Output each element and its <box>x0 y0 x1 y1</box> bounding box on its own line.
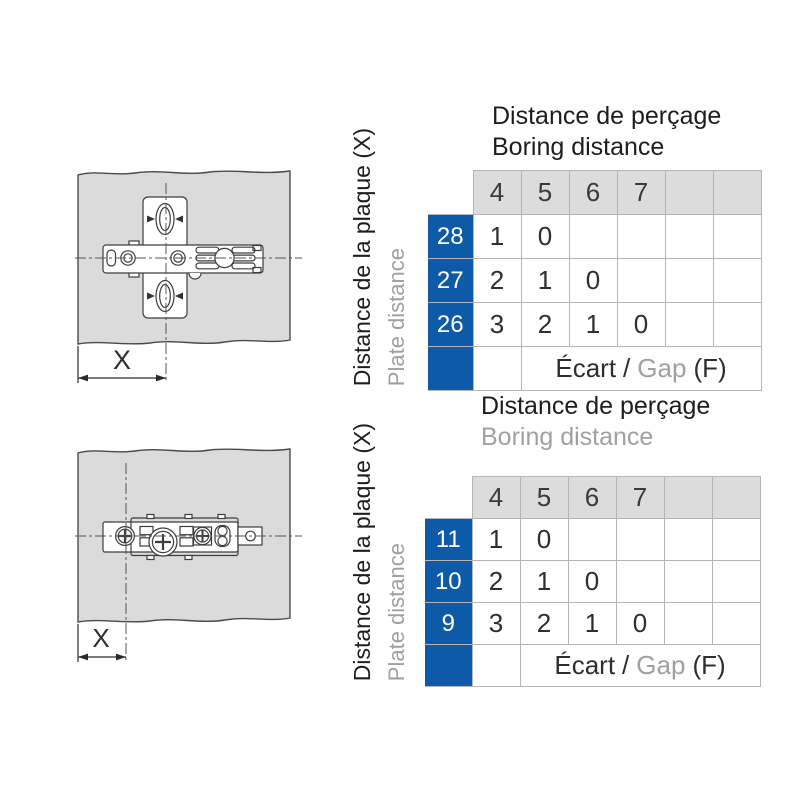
value-cell <box>665 215 713 259</box>
row-header: 11 <box>425 519 472 561</box>
value-cell: 1 <box>521 259 569 303</box>
table-title-en: Boring distance <box>481 422 710 453</box>
value-cell <box>568 519 616 561</box>
column-header-row: 4 5 6 7 <box>425 477 760 519</box>
value-cell <box>713 259 761 303</box>
corner-cell <box>425 477 472 519</box>
value-cell <box>616 519 664 561</box>
value-cell <box>616 561 664 603</box>
value-cell: 2 <box>520 603 568 645</box>
empty-cell <box>472 645 520 687</box>
table-row: 27 2 1 0 <box>428 259 761 303</box>
dimension-x: X <box>78 345 166 383</box>
value-cell <box>617 215 665 259</box>
side-label-plate-distance-fr-bottom: Distance de la plaque (X) <box>349 423 376 681</box>
boring-distance-table-top: 4 5 6 7 28 1 0 27 2 1 0 26 3 <box>428 170 762 391</box>
value-cell: 0 <box>569 259 617 303</box>
value-cell: 0 <box>520 519 568 561</box>
value-cell: 3 <box>473 303 521 347</box>
gap-label-suffix: (F) <box>692 650 725 680</box>
footer-row: Écart/Gap(F) <box>425 645 760 687</box>
value-cell: 0 <box>617 303 665 347</box>
mounting-plate-drawing-bottom: X <box>55 430 320 670</box>
table-row: 10 2 1 0 <box>425 561 760 603</box>
value-cell: 1 <box>473 215 521 259</box>
empty-cell <box>473 347 521 391</box>
gap-label-cell: Écart/Gap(F) <box>520 645 760 687</box>
row-header: 27 <box>428 259 473 303</box>
footer-row: Écart/Gap(F) <box>428 347 761 391</box>
column-header: 5 <box>520 477 568 519</box>
column-header <box>664 477 712 519</box>
table-title-bottom: Distance de perçage Boring distance <box>481 391 710 453</box>
value-cell <box>712 519 760 561</box>
side-label-plate-distance-en-top: Plate distance <box>384 248 410 386</box>
dimension-label: X <box>113 345 131 375</box>
column-header <box>713 171 761 215</box>
column-header: 4 <box>472 477 520 519</box>
value-cell <box>713 303 761 347</box>
table-title-fr: Distance de perçage <box>481 391 710 422</box>
value-cell: 2 <box>521 303 569 347</box>
value-cell <box>617 259 665 303</box>
value-cell <box>665 259 713 303</box>
value-cell: 1 <box>472 519 520 561</box>
footer-blue-cell <box>425 645 472 687</box>
gap-label-suffix: (F) <box>693 353 726 383</box>
catalog-page: X <box>0 0 800 800</box>
gap-label-cell: Écart/Gap(F) <box>521 347 761 391</box>
value-cell <box>665 303 713 347</box>
gap-label-fr: Écart <box>554 650 615 680</box>
column-header: 5 <box>521 171 569 215</box>
table-row: 9 3 2 1 0 <box>425 603 760 645</box>
side-label-plate-distance-en-bottom: Plate distance <box>384 543 410 681</box>
gap-label-separator: / <box>622 650 629 680</box>
value-cell: 2 <box>472 561 520 603</box>
gap-label-fr: Écart <box>555 353 616 383</box>
value-cell <box>569 215 617 259</box>
value-cell <box>664 519 712 561</box>
dimension-x: X <box>78 623 126 662</box>
mounting-plate-drawing-top: X <box>55 150 320 390</box>
table-row: 26 3 2 1 0 <box>428 303 761 347</box>
gap-label-en: Gap <box>637 353 686 383</box>
column-header: 4 <box>473 171 521 215</box>
table-title-fr: Distance de perçage <box>492 101 721 132</box>
column-header: 7 <box>616 477 664 519</box>
footer-blue-cell <box>428 347 473 391</box>
column-header-row: 4 5 6 7 <box>428 171 761 215</box>
table-row: 28 1 0 <box>428 215 761 259</box>
row-header: 26 <box>428 303 473 347</box>
value-cell: 0 <box>521 215 569 259</box>
value-cell: 3 <box>472 603 520 645</box>
table-row: 11 1 0 <box>425 519 760 561</box>
value-cell <box>713 215 761 259</box>
value-cell <box>712 561 760 603</box>
value-cell: 0 <box>568 561 616 603</box>
column-header <box>712 477 760 519</box>
value-cell <box>664 561 712 603</box>
value-cell <box>712 603 760 645</box>
column-header: 6 <box>568 477 616 519</box>
value-cell: 1 <box>568 603 616 645</box>
value-cell: 0 <box>616 603 664 645</box>
value-cell: 1 <box>569 303 617 347</box>
column-header: 6 <box>569 171 617 215</box>
value-cell: 1 <box>520 561 568 603</box>
dimension-label: X <box>92 623 109 653</box>
table-title-en: Boring distance <box>492 132 721 163</box>
value-cell <box>664 603 712 645</box>
gap-label-en: Gap <box>636 650 685 680</box>
side-label-plate-distance-fr-top: Distance de la plaque (X) <box>349 128 376 386</box>
value-cell: 2 <box>473 259 521 303</box>
gap-label-separator: / <box>623 353 630 383</box>
corner-cell <box>428 171 473 215</box>
column-header: 7 <box>617 171 665 215</box>
table-title-top: Distance de perçage Boring distance <box>492 101 721 163</box>
row-header: 9 <box>425 603 472 645</box>
row-header: 10 <box>425 561 472 603</box>
row-header: 28 <box>428 215 473 259</box>
boring-distance-table-bottom: 4 5 6 7 11 1 0 10 2 1 0 9 3 2 <box>425 476 761 687</box>
column-header <box>665 171 713 215</box>
